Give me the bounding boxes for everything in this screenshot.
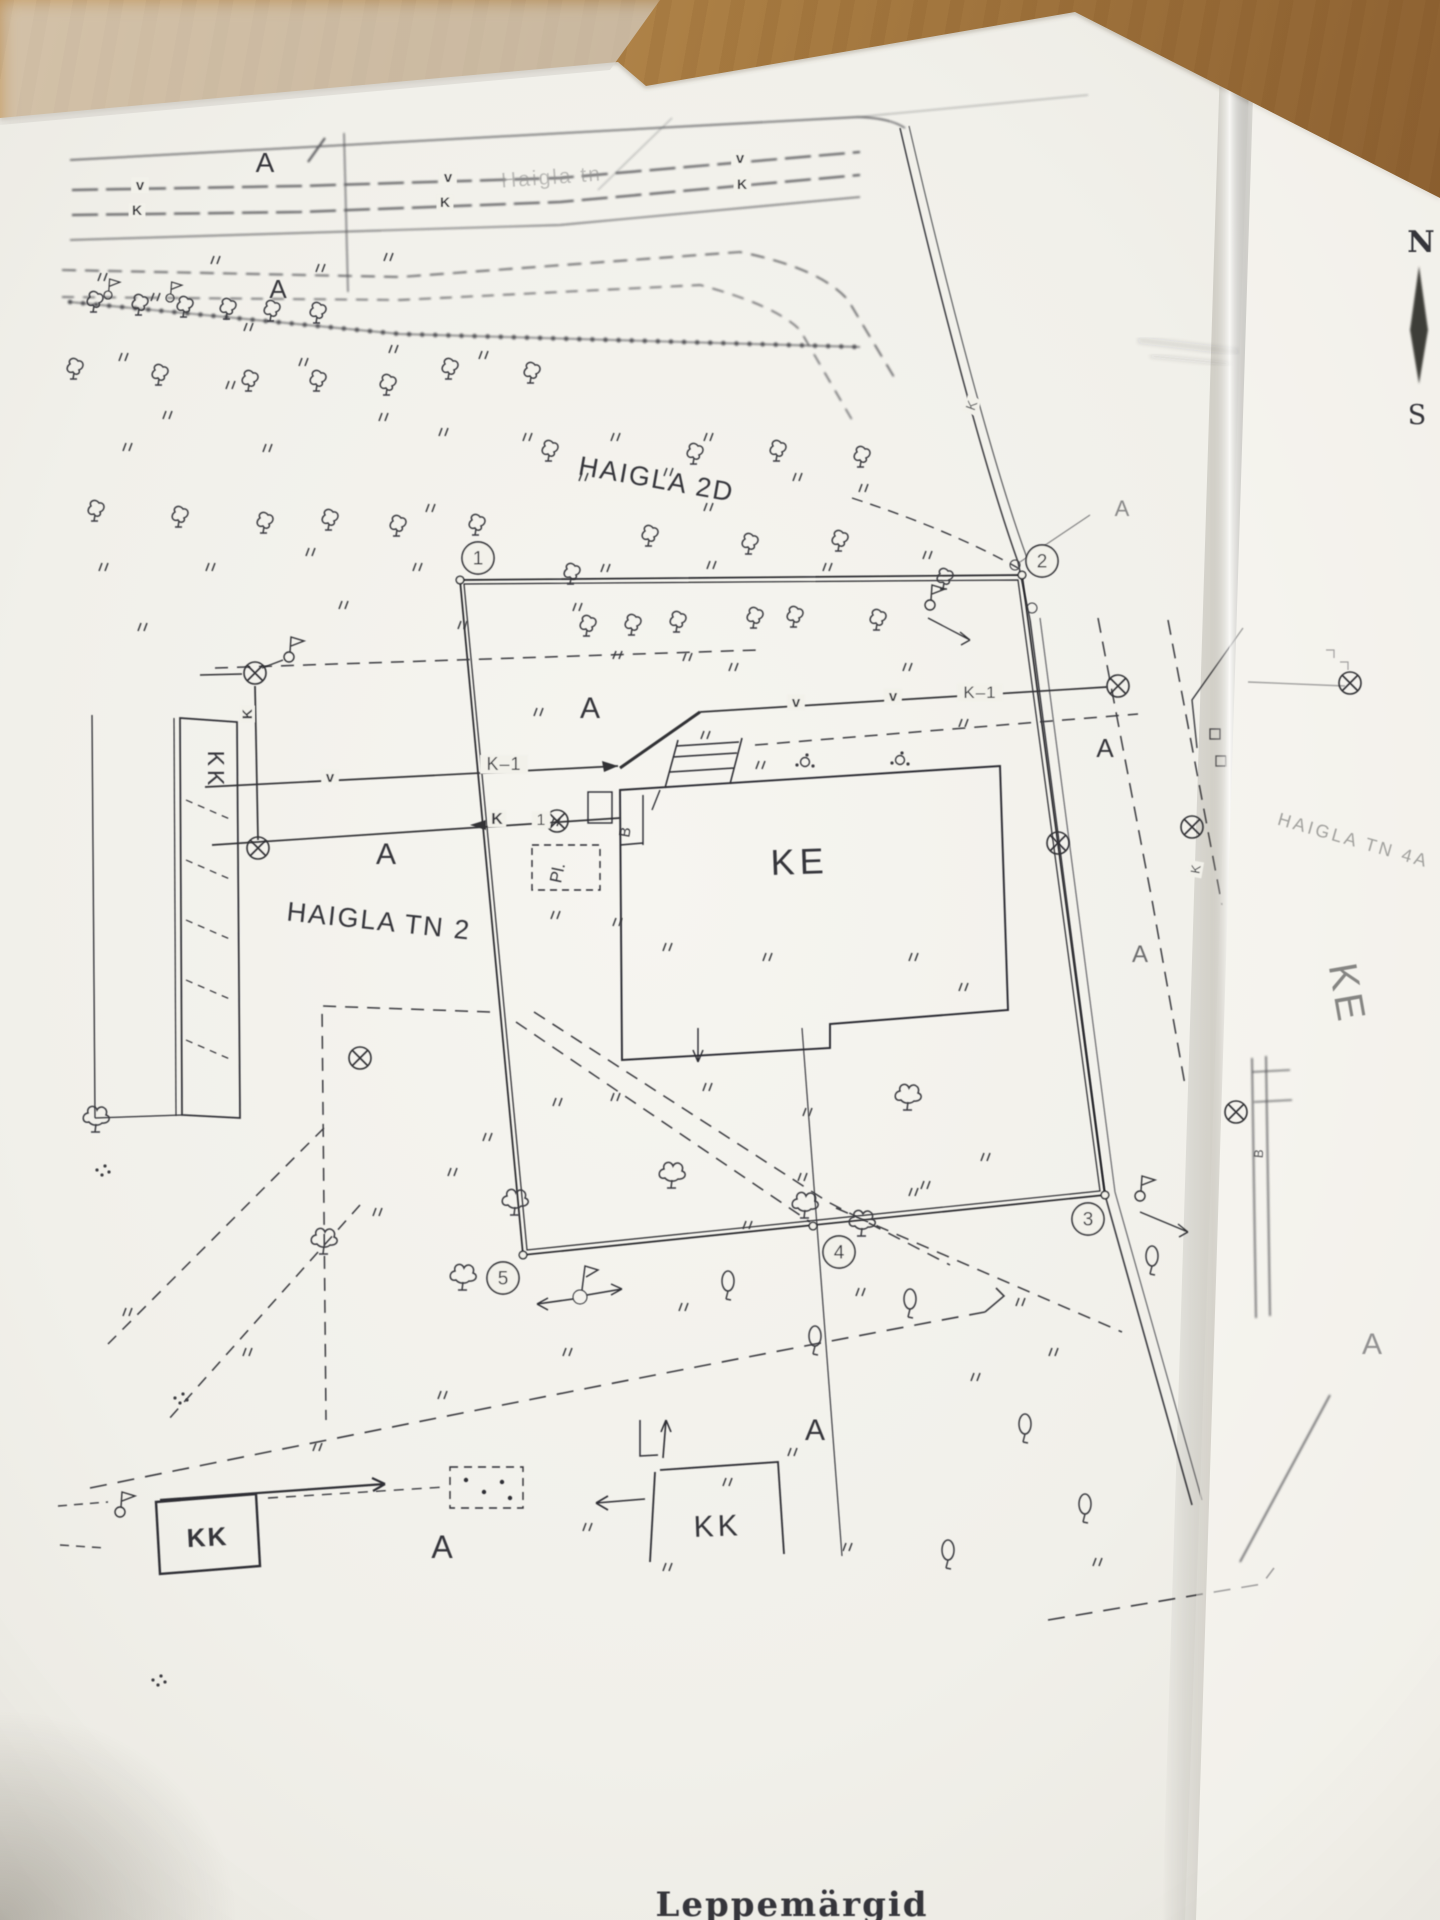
water-line-marker: v	[889, 688, 898, 705]
surface-label-a: A	[376, 838, 396, 871]
corner-number: 1	[473, 549, 484, 570]
surface-label-a: A	[1132, 941, 1148, 968]
building-label-kk-bottom: KK	[693, 1509, 742, 1544]
vertex-icon	[456, 576, 464, 584]
site-plan-sheet: 12345Haigla tnHAIGLA 2DHAIGLA TN 2HAIGLA…	[0, 0, 1440, 1920]
corner-number: 2	[1037, 552, 1048, 573]
utility-label-k1-digit: 1	[537, 812, 546, 829]
compass-south-label: S	[1408, 400, 1427, 431]
vertex-icon	[519, 1251, 527, 1259]
surface-label-a: A	[1096, 733, 1114, 763]
utility-label-k1: K–1	[486, 754, 521, 774]
surface-label-a: A	[269, 274, 287, 304]
vertex-icon	[1018, 571, 1026, 579]
building-label-kk-left: KK	[203, 751, 229, 790]
water-line-marker: v	[326, 769, 335, 786]
water-line-marker: v	[736, 150, 745, 167]
corner-shadow	[0, 1690, 260, 1920]
entrance-label-b: B	[1251, 1149, 1267, 1159]
sewer-line-marker: K	[239, 709, 255, 719]
sewer-line-marker: K	[440, 194, 450, 210]
site-plan-drawing: 12345Haigla tnHAIGLA 2DHAIGLA TN 2HAIGLA…	[0, 0, 1440, 1920]
building-label-ke: KE	[770, 840, 829, 883]
surface-label-a: A	[580, 692, 600, 725]
building-label-kk-bottom-left: KK	[186, 1521, 229, 1553]
sewer-line-marker: K	[737, 176, 747, 192]
surface-label-a: A	[256, 147, 275, 178]
vertex-icon	[809, 1222, 817, 1230]
vertex-icon	[1101, 1191, 1109, 1199]
photo-of-site-plan: { "plan": { "colors": { "ink": "#34353a"…	[0, 0, 1440, 1920]
corner-number: 4	[834, 1243, 845, 1264]
sewer-line-marker: K	[491, 811, 503, 828]
water-line-marker: v	[792, 694, 801, 711]
surface-label-a: A	[1115, 496, 1130, 521]
utility-label-k1: K–1	[963, 683, 996, 702]
surface-label-a: A	[1362, 1328, 1382, 1361]
sewer-line-marker: K	[132, 202, 142, 218]
compass-north-label: N	[1407, 225, 1434, 260]
water-line-marker: v	[444, 169, 453, 186]
water-line-marker: v	[136, 177, 145, 194]
surface-label-a: A	[431, 1529, 453, 1565]
corner-number: 5	[498, 1269, 509, 1290]
sheet-caption-partial: Leppemärgid	[655, 1885, 928, 1920]
corner-number: 3	[1083, 1210, 1094, 1231]
porch-label-pl: Pl.	[546, 861, 569, 884]
surface-label-a: A	[805, 1414, 825, 1447]
